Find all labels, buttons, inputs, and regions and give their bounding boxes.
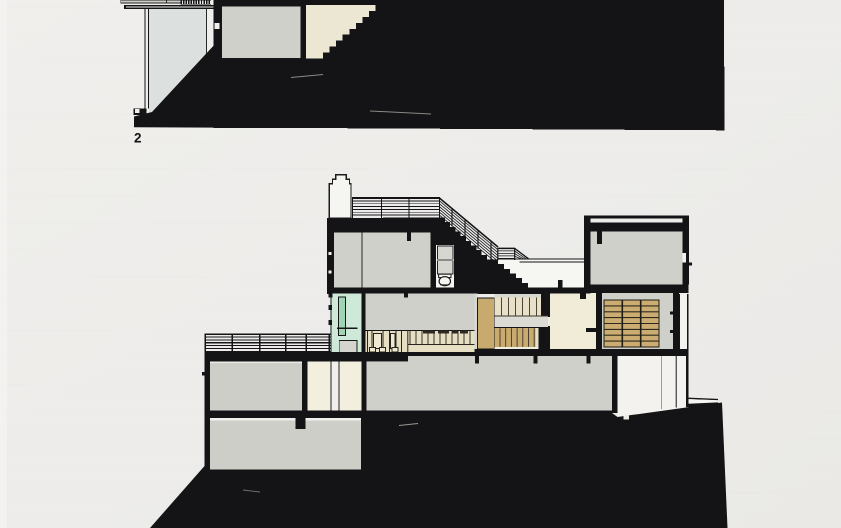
svg-text:2: 2 [134, 131, 142, 146]
